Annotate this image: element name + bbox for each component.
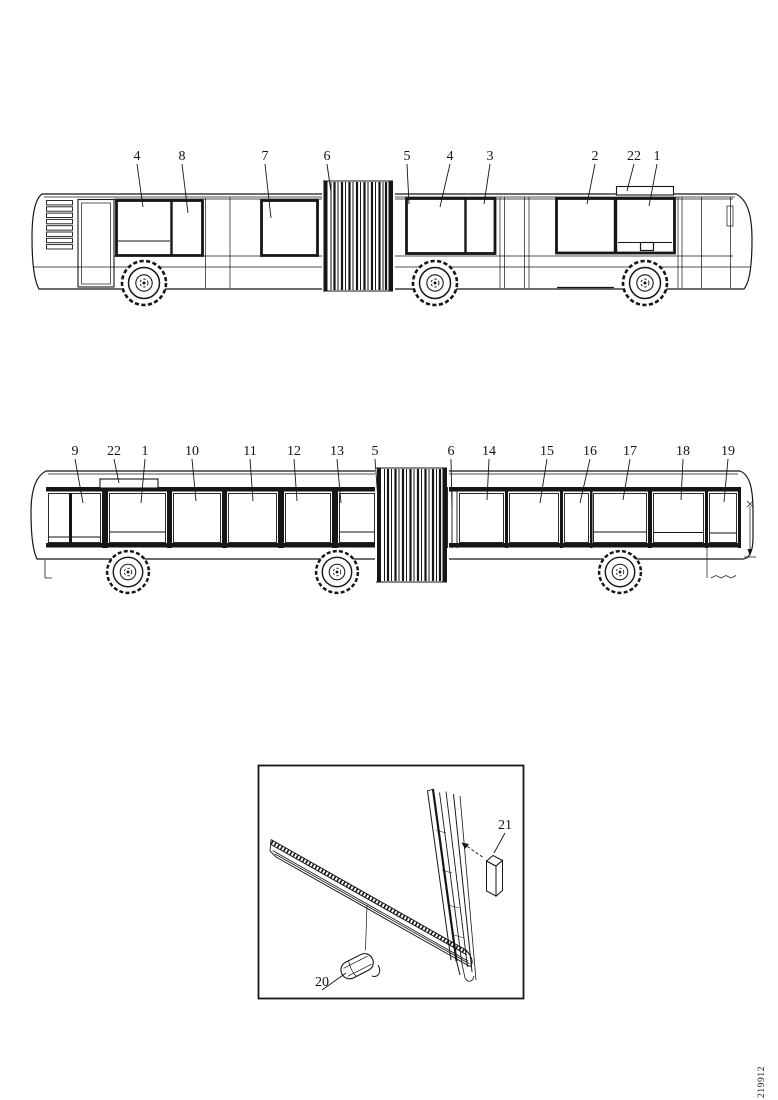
- window-18: [653, 494, 704, 543]
- bottom-view-bus: [31, 466, 756, 593]
- callout-label-13: 13: [330, 444, 344, 459]
- window-11: [229, 494, 277, 543]
- wheel: [107, 551, 149, 593]
- wheel: [623, 261, 667, 305]
- front-door-window-9: [48, 493, 101, 543]
- callout-leader-15: [540, 459, 547, 503]
- callout-label-22: 22: [107, 444, 121, 459]
- callout-leader-19: [724, 459, 728, 502]
- callout-label-7: 7: [262, 149, 269, 164]
- top-view-bus: [32, 179, 752, 305]
- wheel: [316, 551, 358, 593]
- callout-label-19: 19: [721, 444, 735, 459]
- callout-label-6: 6: [324, 149, 331, 164]
- rear-dimension-mark: [744, 501, 756, 557]
- wheel: [599, 551, 641, 593]
- window-1: [109, 494, 166, 543]
- front-window-2-1: [557, 199, 675, 254]
- callout-label-18: 18: [676, 444, 690, 459]
- callout-label-4: 4: [447, 149, 454, 164]
- window-12: [286, 494, 331, 543]
- callout-label-10: 10: [185, 444, 199, 459]
- callout-label-12: 12: [287, 444, 301, 459]
- callout-label-16: 16: [583, 444, 597, 459]
- callout-label-4: 4: [134, 149, 141, 164]
- front-bumper-detail: [45, 560, 52, 578]
- callout-label-15: 15: [540, 444, 554, 459]
- panel-joints-middle: [500, 197, 529, 288]
- callout-leader-12: [294, 459, 297, 501]
- engine-louver: [47, 201, 73, 250]
- front-door-handle: [727, 206, 733, 226]
- bus-parts-illustration: 48765432221: [0, 0, 778, 1100]
- callout-label-3: 3: [487, 149, 494, 164]
- window-14: [460, 494, 504, 543]
- roof-sign-top-view: [617, 187, 674, 196]
- articulation-bellows-top-view: [322, 179, 395, 293]
- part-21-spacer-block: [487, 856, 503, 897]
- detail-inset: [259, 766, 524, 999]
- window-13: [339, 494, 375, 543]
- front-door-joints: [678, 197, 731, 288]
- rear-engine-door: [78, 200, 114, 288]
- callout-label-17: 17: [623, 444, 637, 459]
- panel-joints-rear: [206, 197, 231, 288]
- callout-label-5: 5: [404, 149, 411, 164]
- callout-label-21: 21: [498, 818, 512, 833]
- window-19: [709, 494, 737, 543]
- wheel: [122, 261, 166, 305]
- wheel: [413, 261, 457, 305]
- callout-label-8: 8: [179, 149, 186, 164]
- roof-sign-bottom-view: [100, 479, 158, 488]
- callout-label-2: 2: [592, 149, 599, 164]
- window-vent-box: [641, 243, 654, 251]
- window-17: [593, 494, 647, 543]
- callout-label-11: 11: [243, 444, 256, 459]
- drawing-number: 219912: [757, 1066, 767, 1098]
- ground-mark: [711, 576, 736, 579]
- callout-label-14: 14: [482, 444, 496, 459]
- callout-label-9: 9: [72, 444, 79, 459]
- callout-label-6: 6: [448, 444, 455, 459]
- rear-side-window-4-8: [117, 201, 203, 256]
- front-section-window-4-3: [407, 199, 496, 254]
- callout-label-1: 1: [142, 444, 149, 459]
- callout-label-5: 5: [372, 444, 379, 459]
- callout-leader-10: [192, 459, 196, 501]
- callout-label-20: 20: [315, 975, 329, 990]
- callout-leader-11: [250, 459, 253, 501]
- callout-leader-6: [451, 459, 452, 508]
- callout-label-1: 1: [654, 149, 661, 164]
- window-15: [510, 494, 559, 543]
- articulation-bellows-bottom-view: [375, 466, 449, 585]
- callout-label-22: 22: [627, 149, 641, 164]
- window-16: [565, 494, 589, 543]
- inset-border: [259, 766, 524, 999]
- callout-leader-9: [75, 459, 83, 503]
- window-10: [174, 494, 221, 543]
- bus-window-parts-diagram-page: 48765432221: [0, 0, 778, 1100]
